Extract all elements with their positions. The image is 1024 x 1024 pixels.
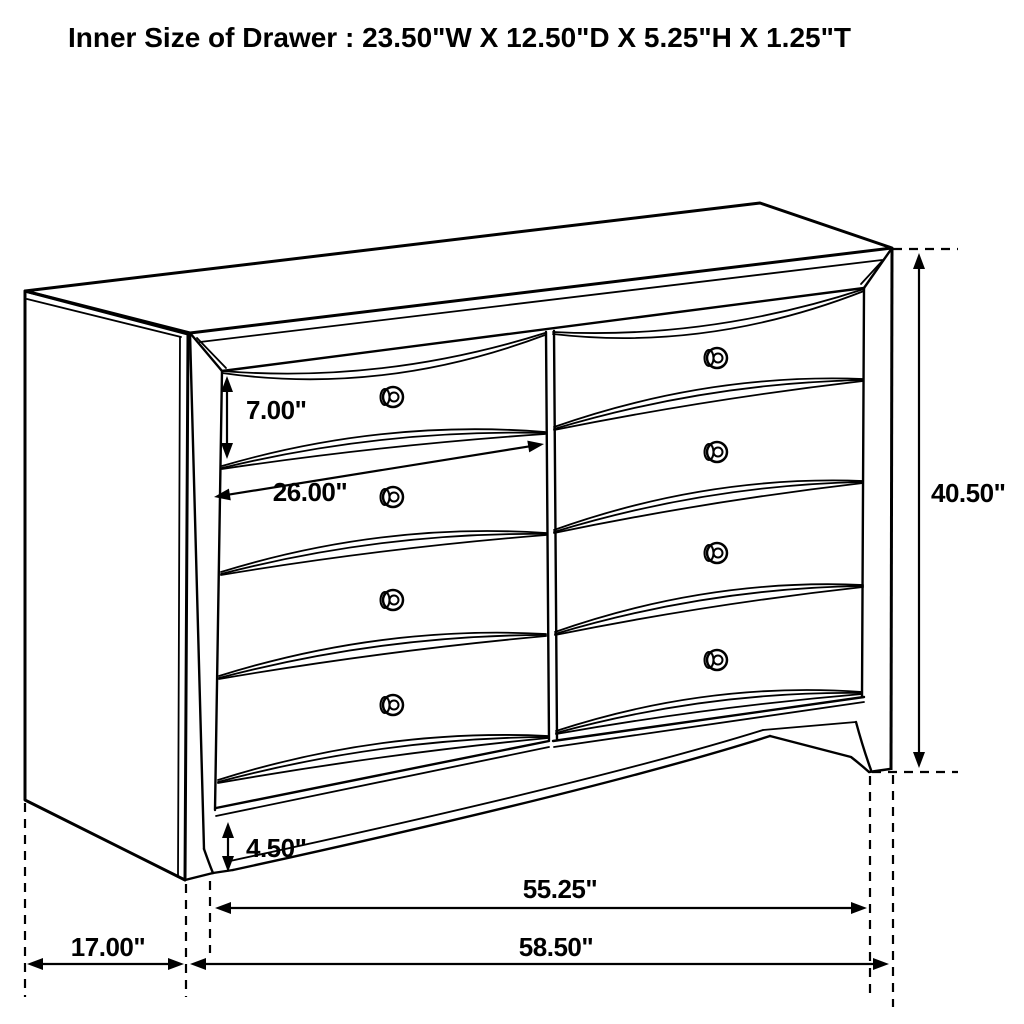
side-depth-label: 17.00" xyxy=(71,932,145,962)
spec-sheet: Inner Size of Drawer : 23.50"W X 12.50"D… xyxy=(0,0,1024,1024)
drawer-width-label: 26.00" xyxy=(273,477,347,507)
overall-width-label: 58.50" xyxy=(519,932,593,962)
base-rail-height-label: 4.50" xyxy=(246,833,306,863)
dimension-labels: 7.00" 26.00" 40.50" 4.50" 55.25" 58.50" … xyxy=(71,395,1006,962)
extension-lines xyxy=(25,249,958,1007)
knob-icon xyxy=(381,387,404,407)
drawer-height-label: 7.00" xyxy=(246,395,306,425)
face-frame xyxy=(190,248,892,873)
knob-icon xyxy=(381,487,404,507)
case-width-label: 55.25" xyxy=(523,874,597,904)
drawer-front-curves xyxy=(218,289,864,783)
side-panel xyxy=(25,291,213,880)
knob-icon xyxy=(381,590,404,610)
knob-icon xyxy=(705,442,728,462)
dimension-lines xyxy=(27,253,925,970)
knob-icon xyxy=(705,543,728,563)
knob-icon xyxy=(705,650,728,670)
knob-icon xyxy=(381,695,404,715)
dresser-top xyxy=(25,203,892,371)
overall-height-label: 40.50" xyxy=(931,478,1005,508)
knob-icon xyxy=(705,348,728,368)
dresser-diagram: 7.00" 26.00" 40.50" 4.50" 55.25" 58.50" … xyxy=(0,0,1024,1024)
